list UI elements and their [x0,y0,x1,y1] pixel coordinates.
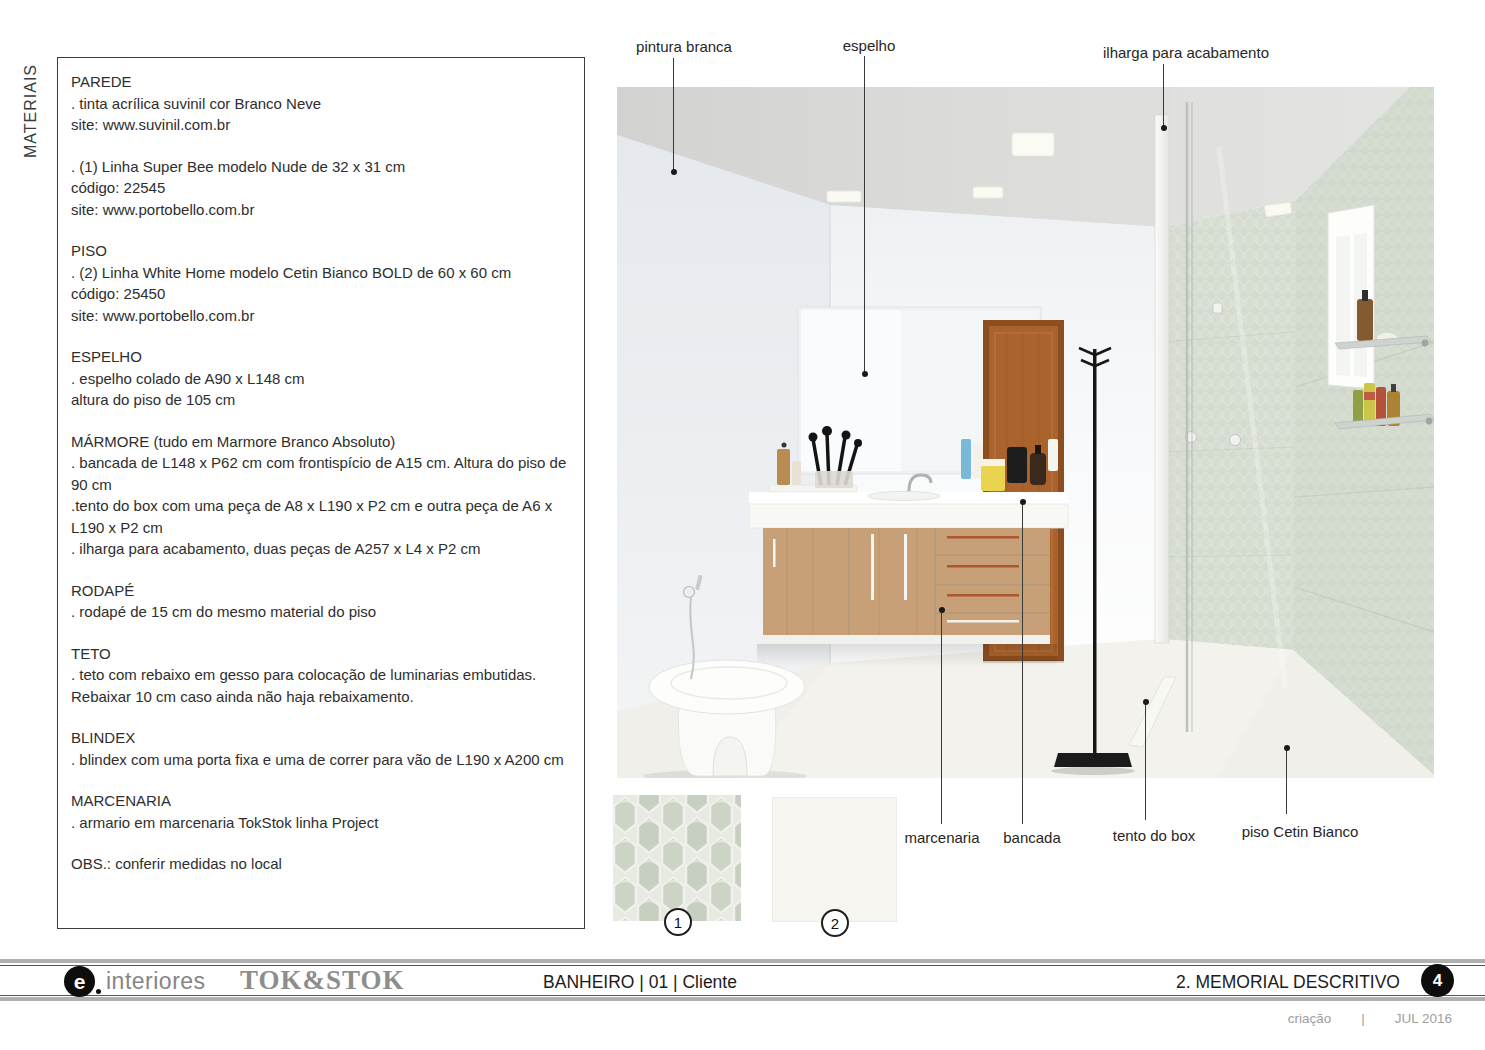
spec-line: .tento do box com uma peça de A8 x L190 … [71,495,574,538]
section-title: RODAPÉ [71,580,574,602]
callout-line-ilharga [1163,64,1164,128]
swatch-number-1: 1 [664,908,692,936]
callout-label-marcenaria: marcenaria [904,829,979,846]
callout-label-ilharga: ilharga para acabamento [1103,44,1269,61]
callout-line-espelho [864,56,865,374]
shower-glass-panel [1129,87,1434,778]
credit-label: criação [1288,1011,1332,1026]
section-title: MARCENARIA [71,790,574,812]
footer-rule-top-gray [0,959,1485,963]
spec-line: . bancada de L148 x P62 cm com frontispí… [71,452,574,495]
page-number-badge: 4 [1421,964,1454,997]
swatch-2-label: 2 [831,915,839,932]
materials-spec-panel: PAREDE . tinta acrílica suvinil cor Bran… [57,57,585,929]
page-number: 4 [1433,971,1442,991]
spec-line: código: 22545 [71,177,574,199]
spec-line: . espelho colado de A90 x L148 cm [71,368,574,390]
callout-line-pintura-branca [673,58,674,172]
callout-dot-piso [1284,745,1290,751]
credit-date: JUL 2016 [1395,1011,1452,1026]
e-interiores-logo: e [64,966,95,997]
spec-section-blindex: BLINDEX . blindex com uma porta fixa e u… [71,727,574,770]
spec-section-espelho: ESPELHO . espelho colado de A90 x L148 c… [71,346,574,411]
callout-dot-pintura-branca [671,169,677,175]
section-title: ESPELHO [71,346,574,368]
spec-section-parede-revestimento: . (1) Linha Super Bee modelo Nude de 32 … [71,156,574,221]
callout-label-pintura-branca: pintura branca [636,38,732,55]
spec-line: . blindex com uma porta fixa e uma de co… [71,749,574,771]
callout-label-bancada: bancada [1003,829,1061,846]
spec-line: código: 25450 [71,283,574,305]
spec-section-marcenaria: MARCENARIA . armario em marcenaria TokSt… [71,790,574,833]
swatch-hex-mosaic [613,795,741,921]
swatch-number-2: 2 [821,909,849,937]
spec-line: site: www.portobello.com.br [71,199,574,221]
spec-line: . (1) Linha Super Bee modelo Nude de 32 … [71,156,574,178]
footer-rule-bottom-dark [0,995,1485,997]
e-interiores-wordmark: interiores [106,968,206,995]
footer-rule-bottom-gray [0,997,1485,1001]
section-title: TETO [71,643,574,665]
spec-line: . tinta acrílica suvinil cor Branco Neve [71,93,574,115]
callout-dot-bancada [1020,499,1026,505]
credit-separator: | [1361,1011,1365,1026]
spec-line: OBS.: conferir medidas no local [71,853,574,875]
swatch-white-tile [772,797,897,922]
section-title: PISO [71,240,574,262]
spec-section-parede: PAREDE . tinta acrílica suvinil cor Bran… [71,71,574,136]
footer-rule-top-dark [0,965,1485,967]
callout-dot-tento-do-box [1143,699,1149,705]
callout-line-piso [1286,748,1287,814]
callout-line-tento-do-box [1145,702,1146,820]
section-title: PAREDE [71,71,574,93]
spec-section-marmore: MÁRMORE (tudo em Marmore Branco Absoluto… [71,431,574,560]
section-title: BLINDEX [71,727,574,749]
section-title: MÁRMORE (tudo em Marmore Branco Absoluto… [71,431,574,453]
bathroom-render [617,87,1434,778]
spec-line: . (2) Linha White Home modelo Cetin Bian… [71,262,574,284]
callout-dot-marcenaria [939,607,945,613]
spec-section-obs: OBS.: conferir medidas no local [71,853,574,875]
project-title: BANHEIRO | 01 | Cliente [543,972,737,993]
spec-line: . ilharga para acabamento, duas peças de… [71,538,574,560]
spec-line: site: www.suvinil.com.br [71,114,574,136]
vanity-cabinet [749,492,1068,668]
spec-line: . teto com rebaixo em gesso para colocaç… [71,664,574,707]
e-logo-period [96,989,101,994]
credits-line: criação | JUL 2016 [1288,1011,1452,1026]
spec-section-teto: TETO . teto com rebaixo em gesso para co… [71,643,574,708]
spec-line: . rodapé de 15 cm do mesmo material do p… [71,601,574,623]
spec-line: site: www.portobello.com.br [71,305,574,327]
callout-label-piso: piso Cetin Bianco [1242,823,1359,840]
sidebar-label-materiais: MATERIAIS [22,64,40,158]
section-heading: 2. MEMORIAL DESCRITIVO [1176,972,1400,993]
spec-section-piso: PISO . (2) Linha White Home modelo Cetin… [71,240,574,326]
swatch-1-label: 1 [674,914,682,931]
callout-line-bancada [1022,502,1023,824]
memorial-descritivo-page: MATERIAIS PAREDE . tinta acrílica suvini… [0,0,1485,1050]
callout-label-espelho: espelho [843,37,896,54]
ilharga-strip [1155,115,1169,643]
e-logo-letter: e [74,970,86,994]
spec-section-rodape: RODAPÉ . rodapé de 15 cm do mesmo materi… [71,580,574,623]
spec-line: . armario em marcenaria TokStok linha Pr… [71,812,574,834]
spec-line: altura do piso de 105 cm [71,389,574,411]
callout-dot-ilharga [1161,125,1167,131]
callout-line-marcenaria [941,610,942,824]
callout-dot-espelho [862,371,868,377]
callout-label-tento-do-box: tento do box [1113,827,1196,844]
tokstok-logo: TOK&STOK [240,965,405,996]
